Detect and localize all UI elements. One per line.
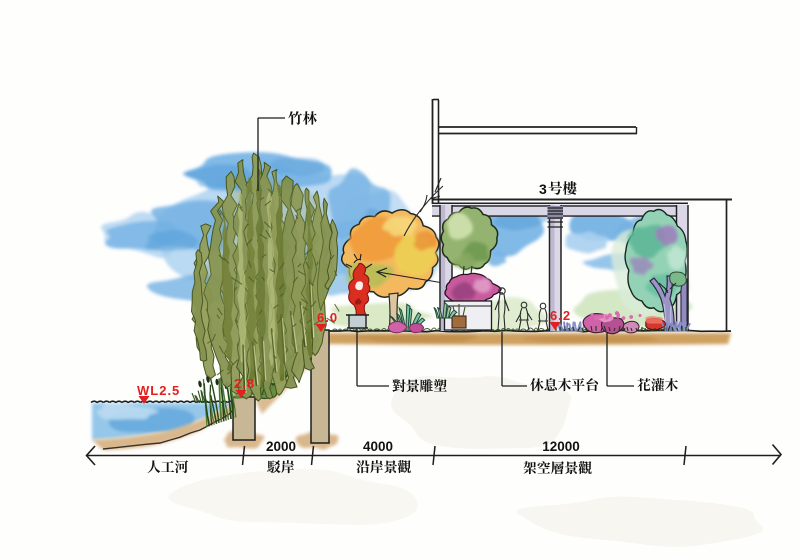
svg-text:2.8: 2.8 — [234, 376, 255, 391]
svg-text:6.0: 6.0 — [317, 310, 338, 325]
svg-text:12000: 12000 — [542, 439, 580, 454]
svg-text:6.2: 6.2 — [550, 308, 571, 323]
svg-text:3: 3 — [539, 181, 547, 197]
svg-text:4000: 4000 — [363, 439, 393, 454]
svg-text:WL2.5: WL2.5 — [137, 383, 180, 398]
svg-text:2000: 2000 — [266, 439, 296, 454]
